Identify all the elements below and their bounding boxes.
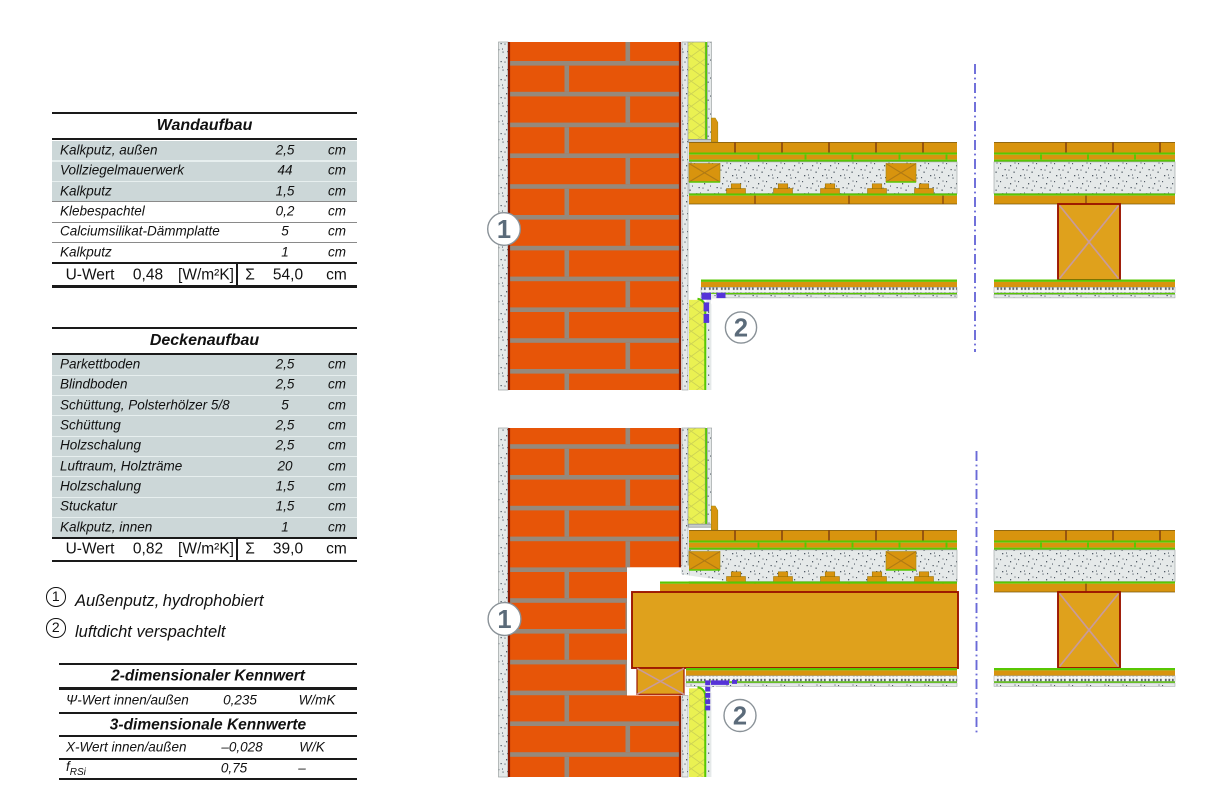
- svg-text:1: 1: [497, 216, 511, 244]
- svg-text:2: 2: [734, 314, 748, 342]
- svg-text:2: 2: [733, 702, 747, 730]
- svg-text:1: 1: [497, 606, 511, 634]
